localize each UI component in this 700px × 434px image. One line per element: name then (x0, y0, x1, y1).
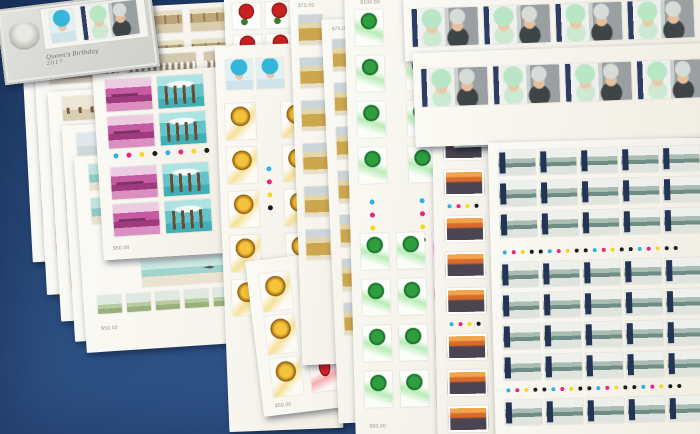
registration-dot (370, 212, 375, 217)
registration-dot (370, 199, 375, 204)
registration-dot (521, 250, 525, 254)
registration-dot (638, 247, 642, 251)
stamp-rose (232, 3, 261, 30)
registration-dot (557, 249, 561, 253)
stamp-fieldphoto (301, 100, 326, 131)
stamp-bigpier (541, 211, 579, 237)
stamp-bigpier (539, 149, 577, 175)
stamp-qeblue (256, 58, 284, 89)
stamp-bigpier (628, 396, 666, 422)
registration-dot (512, 250, 516, 254)
stamp-sunset (445, 216, 485, 243)
stamp-bigpier (544, 323, 582, 349)
registration-dot (468, 322, 472, 326)
stamp-bigpier (542, 261, 580, 287)
registration-dot (165, 150, 170, 155)
stamp-emerald (355, 9, 384, 46)
registration-dot (620, 247, 624, 251)
registration-dots (448, 204, 479, 209)
stamp-bigpier (587, 397, 625, 423)
registration-dot (593, 248, 597, 252)
stamp-bigpier (666, 288, 700, 314)
stamp-bigpier (498, 150, 536, 176)
registration-dot (560, 387, 564, 391)
stamp-emerald (358, 147, 387, 184)
registration-dot (506, 388, 510, 392)
registration-dot (566, 249, 570, 253)
stamp-grid (105, 74, 207, 149)
stamp-bigpier (669, 395, 700, 421)
registration-dot (267, 179, 272, 184)
stamp-bigpier (584, 290, 622, 316)
registration-dot (475, 204, 479, 208)
registration-dot (614, 386, 618, 390)
sheet-price-label: $50.00 (113, 245, 130, 252)
sheet-price-label: $100.00 (360, 0, 380, 6)
registration-dot (569, 387, 573, 391)
stamp-sunset (444, 170, 484, 197)
registration-dot (596, 386, 600, 390)
registration-dot (191, 148, 196, 153)
stamp-royalpair (627, 0, 694, 39)
stamp-tinyscene (184, 289, 209, 309)
registration-dot (611, 248, 615, 252)
stamp-bigpier (625, 289, 663, 315)
stamp-royalpair (555, 2, 622, 42)
stamp-golddisc (259, 271, 293, 312)
stamp-bigpier (665, 257, 700, 283)
registration-dots (450, 322, 481, 327)
registration-dot (623, 385, 627, 389)
registration-dot (178, 149, 183, 154)
stamp-bigpier (583, 259, 621, 285)
stamp-bigpier (663, 176, 700, 202)
stamp-bigpier (585, 321, 623, 347)
stamp-royalpair (80, 0, 140, 40)
registration-dot (668, 384, 672, 388)
stamp-emerald (398, 278, 427, 315)
stamp-qeblue (225, 59, 253, 90)
stamp-emerald (363, 325, 392, 362)
stamp-emerald (356, 55, 385, 92)
stamp-grid (110, 162, 212, 237)
stamp-emerald (357, 101, 386, 138)
stamp-aquapylon (157, 74, 205, 109)
registration-dots (266, 166, 273, 210)
stamp-golddisc (227, 147, 258, 184)
registration-dot (204, 148, 209, 153)
stamp-bigpier (662, 145, 700, 171)
stamp-golddisc (269, 356, 303, 397)
stamp-bigpier (621, 146, 659, 172)
registration-dot (542, 387, 546, 391)
stamp-sunset (445, 252, 485, 279)
registration-dot (524, 388, 528, 392)
registration-dot (515, 388, 519, 392)
stamp-grid (498, 145, 700, 237)
stamp-bigpier (581, 178, 619, 204)
registration-dot (450, 322, 454, 326)
registration-dot (584, 248, 588, 252)
stamp-emerald (360, 233, 389, 270)
registration-dot (665, 246, 669, 250)
registration-dot (641, 385, 645, 389)
registration-dot (656, 246, 660, 250)
registration-dot (629, 247, 633, 251)
registration-dot (459, 322, 463, 326)
registration-dot (659, 384, 663, 388)
stamp-grid (501, 257, 700, 380)
stamp-royalpair (565, 62, 632, 102)
stamp-pinkpier (110, 165, 158, 200)
stamp-grid (225, 58, 284, 90)
stamp-golddisc (225, 103, 256, 140)
registration-dot (575, 249, 579, 253)
registration-dot (677, 384, 681, 388)
stamp-sheets-photo: $50.00 $50.00 $25.00 $50.00 $75.00 $75.0… (0, 0, 700, 434)
registration-dot (267, 192, 272, 197)
registration-dot (477, 322, 481, 326)
stamp-bigpier (585, 352, 623, 378)
registration-dot (266, 166, 271, 171)
stamp-emerald (396, 232, 425, 269)
registration-dots (506, 384, 681, 393)
stamp-bigpier (580, 148, 618, 174)
stamp-sheet-queen-philip-2 (412, 43, 700, 147)
registration-dot (533, 388, 537, 392)
scroll-ornament (8, 21, 41, 50)
stamp-emerald (364, 371, 393, 408)
stamp-bigpier (503, 324, 541, 350)
stamp-bigpier (626, 351, 664, 377)
registration-dot (420, 211, 425, 216)
stamp-bigpier (501, 262, 539, 288)
stamp-bigpier (664, 207, 700, 233)
stamp-pinkpier (112, 202, 160, 237)
registration-dot (503, 250, 507, 254)
stamp-grid (421, 59, 700, 107)
stamp-sunset (447, 370, 487, 397)
registration-dot (268, 205, 273, 210)
registration-dot (466, 204, 470, 208)
stamp-royalpair (421, 67, 488, 107)
sheet-price-label: $50.00 (101, 325, 118, 332)
registration-dot (139, 152, 144, 157)
registration-dot (457, 204, 461, 208)
stamp-bigpier (582, 209, 620, 235)
registration-dot (650, 385, 654, 389)
registration-dots (113, 148, 209, 159)
registration-dot (539, 249, 543, 253)
registration-dot (152, 151, 157, 156)
sheet-price-label: $75.00 (298, 2, 315, 9)
stamp-aquapylon (164, 199, 212, 234)
stamp-pinkpier (107, 114, 155, 149)
registration-dot (113, 153, 118, 158)
stamp-aquapylon (162, 162, 210, 197)
stamp-qeblue (49, 8, 77, 43)
stamp-grid (445, 216, 487, 315)
stamp-bigpier (624, 258, 662, 284)
registration-dot (605, 386, 609, 390)
registration-dot (632, 385, 636, 389)
stamp-bigpier (623, 208, 661, 234)
stamp-fieldphoto (306, 229, 331, 260)
registration-dots (503, 246, 678, 255)
stamp-grid (505, 395, 700, 425)
stamp-sunset (448, 406, 488, 433)
registration-dot (530, 250, 534, 254)
registration-dot (420, 224, 425, 229)
stamp-tinyscene (155, 291, 180, 311)
registration-dot (448, 204, 452, 208)
stamp-pinkpier (105, 77, 153, 112)
stamp-sunset (447, 334, 487, 361)
stamp-bigpier (505, 400, 543, 426)
stamp-bigpier (503, 355, 541, 381)
stamp-royalpair (637, 59, 700, 99)
stamp-grid (447, 334, 489, 433)
registration-dot (370, 225, 375, 230)
stamp-bigpier (546, 398, 584, 424)
registration-dot (647, 247, 651, 251)
sheet-price-label: $50.00 (275, 401, 292, 409)
stamp-bigpier (622, 177, 660, 203)
stamp-bigpier (502, 293, 540, 319)
stamp-aquapylon (159, 111, 207, 146)
registration-dot (548, 249, 552, 253)
stamp-royalpair (493, 64, 560, 104)
stamp-golddisc (228, 191, 259, 228)
stamp-bigpier (667, 319, 700, 345)
stamp-bigpier (543, 292, 581, 318)
stamp-tinyscene (126, 293, 151, 313)
registration-dot (602, 248, 606, 252)
stamp-bigpier (626, 320, 664, 346)
stamp-fieldphoto (300, 57, 325, 88)
registration-dot (551, 387, 555, 391)
stamp-bigpier (540, 180, 578, 206)
registration-dot (674, 246, 678, 250)
stamp-golddisc (264, 313, 298, 354)
stamp-emerald (400, 370, 429, 407)
stamp-bigpier (544, 354, 582, 380)
stamp-grid (411, 0, 694, 47)
stamp-royalpair (411, 7, 478, 47)
stamp-fieldphoto (303, 143, 328, 174)
stamp-fieldphoto (304, 186, 329, 217)
stamp-emerald (362, 279, 391, 316)
stamp-bigpier (499, 181, 537, 207)
stamp-bigpier (667, 350, 700, 376)
stamp-tinyscene (97, 295, 122, 315)
registration-dot (578, 386, 582, 390)
stamp-sheet-large-pier: $105.00 (488, 137, 700, 434)
stamp-royalpair (483, 4, 550, 44)
registration-dot (420, 198, 425, 203)
sheet-price-label: $50.00 (369, 423, 386, 429)
registration-dot (126, 152, 131, 157)
stamp-emerald (399, 324, 428, 361)
stamp-bigpier (500, 212, 538, 238)
minisheet-title: Queen's Birthday 2017 (46, 48, 100, 68)
stamp-sunset (446, 288, 486, 315)
stamp-fieldphoto (298, 14, 323, 45)
registration-dot (587, 386, 591, 390)
